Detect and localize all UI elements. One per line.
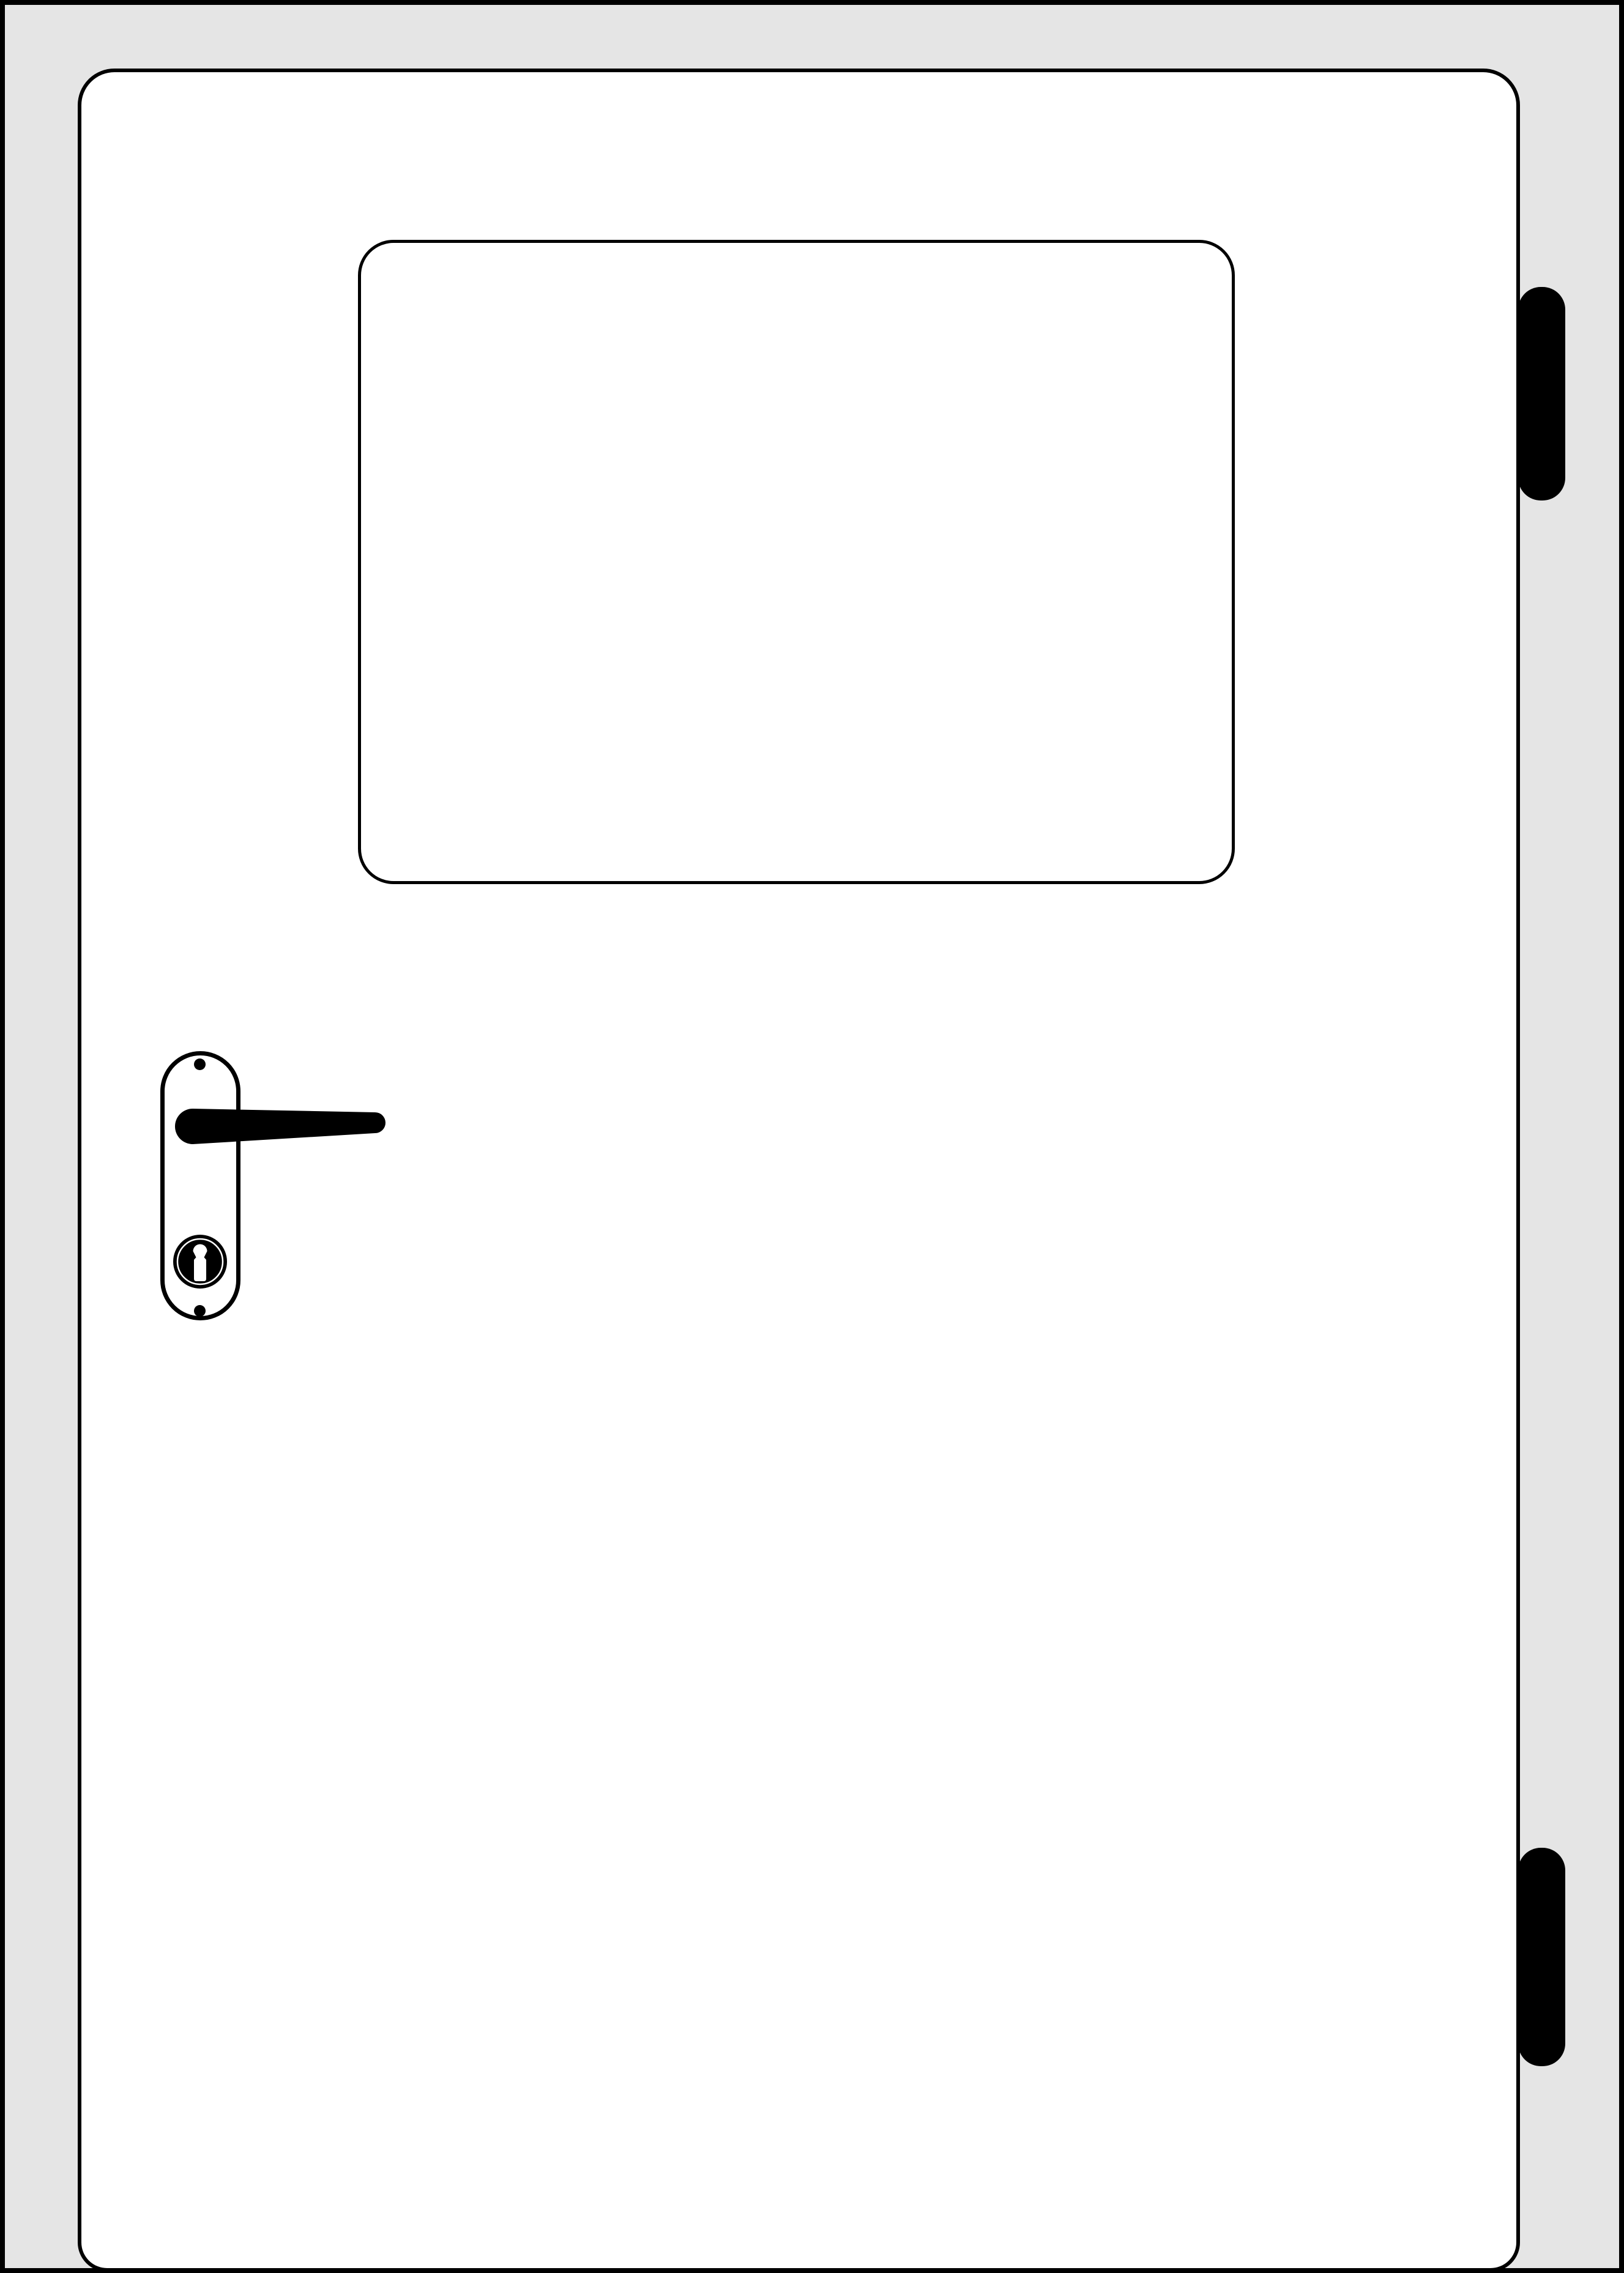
hinge-bottom xyxy=(1518,1848,1565,2066)
screw-bottom-icon xyxy=(194,1305,206,1317)
wall-background xyxy=(0,0,1624,2273)
handle-backplate xyxy=(160,1051,240,1320)
hinge-top xyxy=(1518,287,1565,500)
screw-top-icon xyxy=(194,1058,206,1070)
door-window xyxy=(358,240,1235,884)
